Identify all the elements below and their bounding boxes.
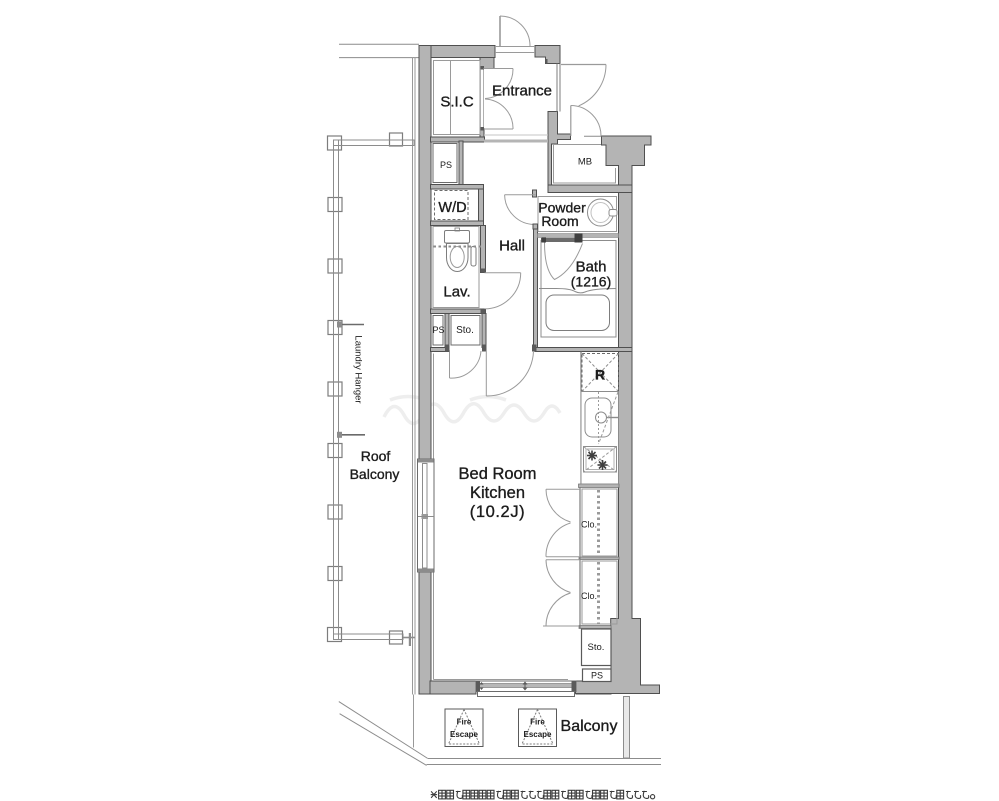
svg-text:Roof: Roof [361, 448, 391, 464]
svg-text:(10.2J): (10.2J) [470, 503, 526, 521]
svg-text:Entrance: Entrance [492, 83, 552, 100]
svg-text:Fire: Fire [457, 718, 472, 727]
svg-text:PS: PS [591, 671, 603, 681]
svg-text:Lav.: Lav. [443, 284, 470, 301]
svg-text:Balcony: Balcony [350, 466, 400, 482]
svg-text:Room: Room [541, 213, 578, 229]
svg-text:MB: MB [578, 157, 592, 168]
svg-text:Bed Room: Bed Room [459, 465, 537, 483]
svg-text:Clo.: Clo. [581, 520, 597, 530]
svg-text:Sto.: Sto. [456, 325, 474, 336]
svg-text:Hall: Hall [499, 238, 525, 255]
svg-text:Balcony: Balcony [561, 718, 618, 735]
svg-text:PS: PS [440, 160, 452, 170]
svg-text:R: R [595, 367, 605, 383]
svg-text:Sto.: Sto. [588, 642, 605, 653]
svg-text:(1216): (1216) [571, 274, 611, 290]
svg-text:S.I.C: S.I.C [440, 94, 474, 111]
svg-text:Fire: Fire [530, 718, 545, 727]
svg-text:Clo.: Clo. [581, 591, 597, 601]
svg-text:Kitchen: Kitchen [470, 484, 525, 502]
svg-text:PS: PS [432, 325, 444, 335]
svg-text:Escape: Escape [450, 730, 479, 739]
svg-text:W/D: W/D [438, 200, 466, 216]
svg-text:Laundry Hanger: Laundry Hanger [353, 335, 364, 403]
svg-text:Escape: Escape [523, 730, 552, 739]
